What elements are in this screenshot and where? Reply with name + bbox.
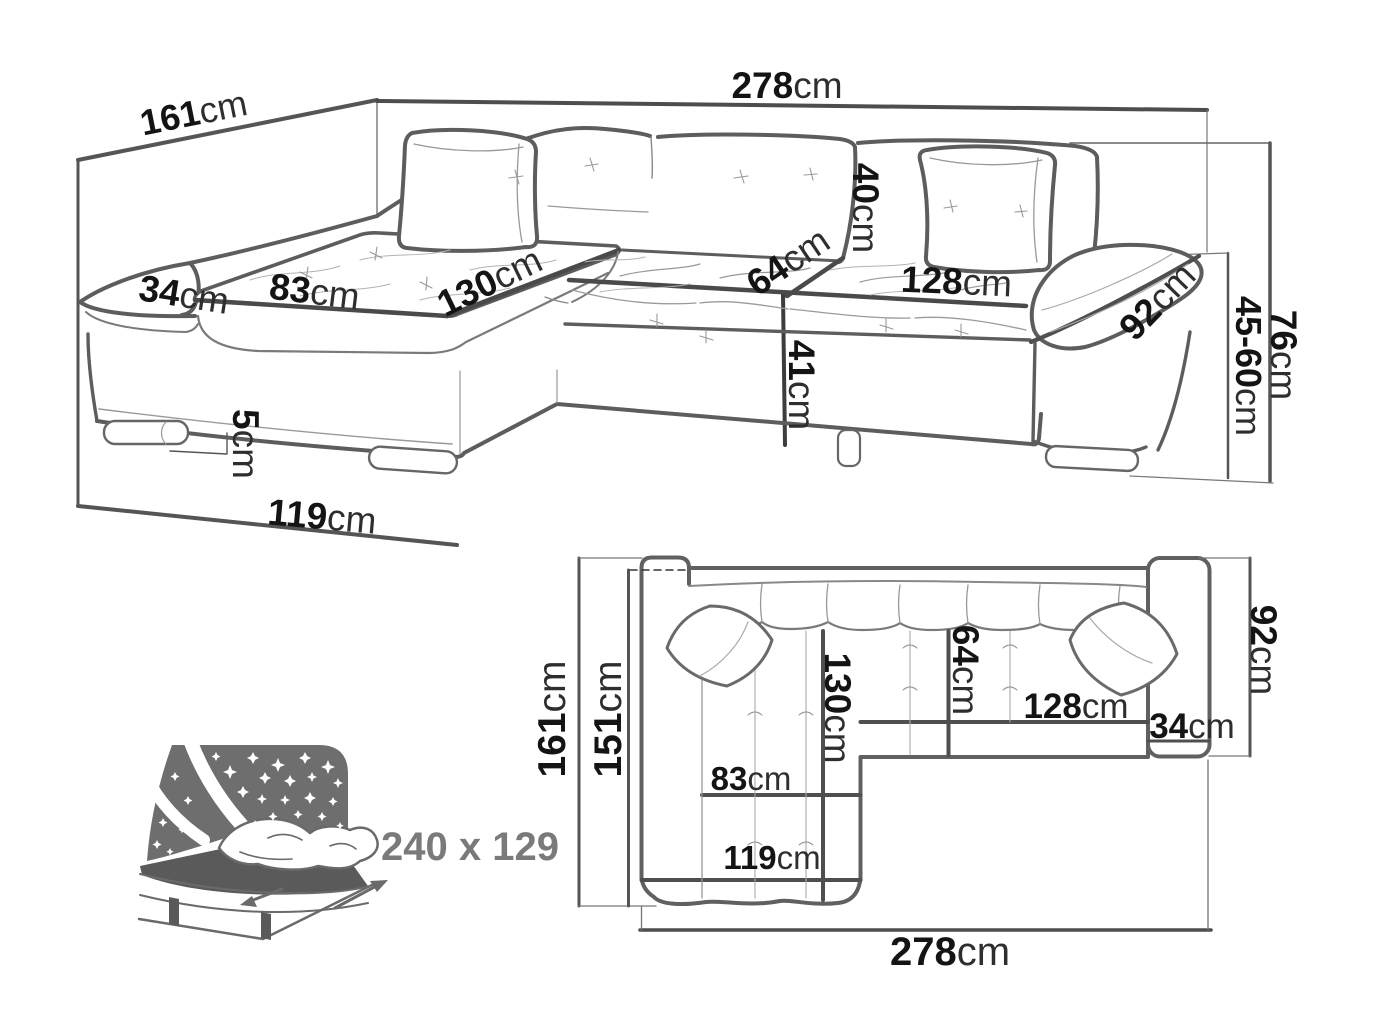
svg-text:92cm: 92cm (1243, 605, 1284, 695)
svg-text:240 x 129: 240 x 129 (381, 825, 559, 869)
svg-text:119cm: 119cm (266, 491, 378, 541)
svg-text:41cm: 41cm (781, 340, 822, 430)
svg-text:119cm: 119cm (723, 839, 820, 876)
svg-text:130cm: 130cm (817, 652, 858, 763)
svg-text:5cm: 5cm (225, 409, 266, 479)
svg-text:34cm: 34cm (1149, 707, 1235, 746)
svg-text:40cm: 40cm (845, 163, 886, 253)
svg-text:278cm: 278cm (890, 930, 1010, 974)
svg-text:128cm: 128cm (900, 259, 1013, 305)
svg-text:161cm: 161cm (531, 660, 574, 777)
svg-text:45-60cm: 45-60cm (1228, 296, 1269, 436)
svg-text:161cm: 161cm (137, 82, 251, 143)
svg-text:151cm: 151cm (587, 660, 630, 777)
svg-text:83cm: 83cm (711, 760, 792, 797)
svg-text:278cm: 278cm (731, 65, 842, 106)
svg-text:64cm: 64cm (945, 625, 986, 715)
svg-text:128cm: 128cm (1023, 687, 1128, 726)
